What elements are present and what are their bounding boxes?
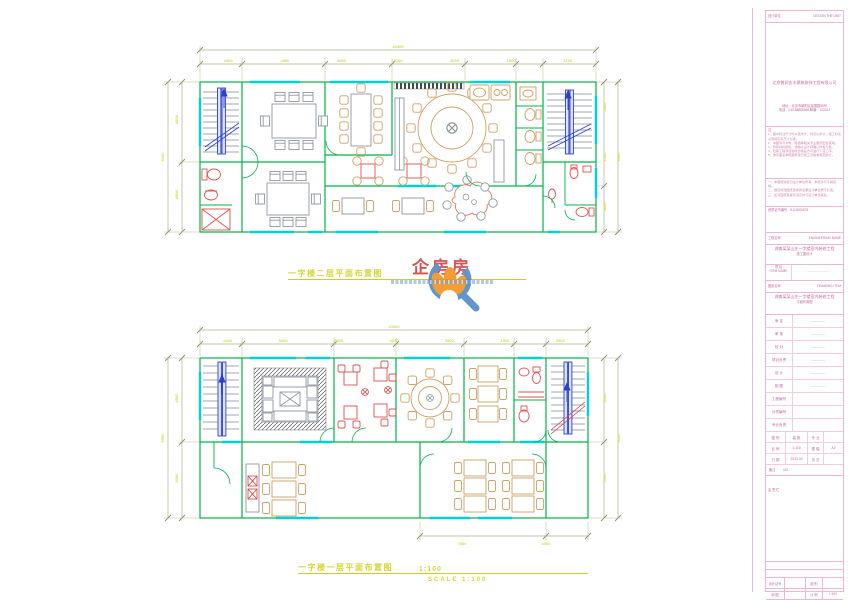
watermark: 企房房: [382, 252, 502, 352]
eng-header-label: 工程名称: [768, 236, 781, 240]
list-item: 4200: [394, 57, 403, 65]
pair-value: 装 施: [785, 432, 807, 442]
pair-value: [823, 432, 843, 442]
pair-label: 日 期: [766, 454, 785, 464]
table-column-upper: [470, 366, 507, 422]
four-seat-tables: [333, 198, 434, 214]
floor-plan-top: [164, 46, 622, 235]
sign-label: 制 图: [766, 380, 792, 392]
grid-value: [784, 589, 805, 599]
pair-row: 图 别装 施专 业: [766, 432, 843, 443]
bathroom-left: [202, 169, 230, 230]
signoff-label: 会 签 栏: [768, 488, 779, 492]
pair-label: 图 别: [766, 432, 785, 442]
company-phone: 电话：010-88886666 邮编：100022: [768, 108, 841, 112]
list-item: 1500: [507, 57, 516, 65]
list-item: 7500: [458, 540, 467, 548]
list-item: 三、如对图纸有疑问请及时与设计单位联系。: [768, 193, 841, 197]
list-item: 3100: [563, 57, 572, 65]
pair-label: 比 例: [766, 443, 785, 453]
dim-bottom-left-segments: 50004500: [173, 358, 181, 518]
plan-title-top-text: 一字楼二层平面布置图: [288, 268, 383, 279]
notes-list: 1、图中标注尺寸均以毫米计，标高以米计，施工时请以现场实际尺寸为准。2、本图须与…: [768, 132, 841, 157]
design-unit-en: DESIGN THE UNIT: [813, 14, 841, 18]
living-room: [254, 368, 326, 430]
title-block: 设计单位 DESIGN THE UNIT 北京普润金丰建筑装饰工程有限公司 地址…: [765, 10, 844, 592]
eng-line1: 湖南某某山庄一字楼室内装修工程: [768, 246, 841, 252]
sign-row: 设 计————: [766, 367, 843, 380]
remark-label: 备注: [769, 468, 775, 472]
list-item: 2500: [556, 337, 565, 345]
eng-line2: 施工图设计: [768, 252, 841, 256]
pair-value: 1:100: [785, 443, 807, 453]
table-group-lower-right-1: [455, 460, 496, 512]
sign-label: 审 定: [766, 315, 792, 327]
design-unit-label: 设计单位: [768, 14, 781, 18]
pair-row: 比 例1:100图 幅A2: [766, 443, 843, 454]
top-plan-stair-left: [203, 88, 239, 154]
cad-sheet: 24400 2400480039004200300015003100 9300 …: [0, 0, 848, 600]
dim-bottom-edge: 75002500: [420, 540, 588, 548]
list-item: 4500: [601, 394, 609, 403]
bottom-plan-bathroom: [518, 367, 544, 422]
sign-row: 审 核————: [766, 328, 843, 341]
grid-label: 制 图: [766, 589, 784, 599]
table-group-lower-right-2: [503, 460, 544, 512]
list-item: 3900: [337, 57, 346, 65]
grid-value: [822, 578, 843, 588]
pair-value: 2013.04: [785, 454, 807, 464]
long-table-room: [340, 84, 382, 156]
sheet-inner-border: [752, 8, 753, 592]
list-item: 4500: [173, 115, 181, 124]
meta-label: 工程编号: [766, 393, 792, 405]
cert-section: 资质证书编号：B113005678: [766, 207, 843, 233]
sign-label: 设 计: [766, 367, 792, 379]
dim-bottom-left-overall: 9500: [159, 358, 167, 518]
bottom-plan-stair-right: [551, 362, 585, 434]
notes-section: 注： 1、图中标注尺寸均以毫米计，标高以米计，施工时请以现场实际尺寸为准。2、本…: [766, 127, 843, 179]
toilet-room-right: [549, 165, 595, 217]
meta-value: [792, 419, 843, 431]
top-plan-dimension-lines: [164, 46, 622, 235]
meta-row: 工程编号: [766, 393, 843, 406]
dim-top-left-segments: 48004500: [173, 82, 181, 232]
item-row: 项 目 ITEM NAME －－－－－－－: [766, 265, 843, 281]
signoff-empty-row: [766, 570, 843, 578]
dim-value: 9000: [615, 153, 623, 162]
item-label-en: ITEM NAME: [766, 269, 791, 273]
item-value: －－－－－－－: [792, 265, 843, 280]
meta-row: 专业负责: [766, 419, 843, 432]
sign-row: 审 定————: [766, 315, 843, 328]
grid-label: 比 例: [805, 589, 822, 599]
draw-line1: 湖南某某山庄一字楼室内装修工程: [768, 294, 841, 300]
plan-title-bottom: 一字楼一层平面布置图 1:100: [298, 559, 588, 574]
draw-header-label: 图纸名称: [768, 284, 781, 288]
list-item: 3000: [450, 57, 459, 65]
list-item: 1400: [601, 153, 609, 162]
grid-value: 1:100: [822, 589, 843, 599]
dim-bottom-right-overall: 9500: [615, 358, 623, 518]
list-item: 4800: [601, 203, 609, 212]
dim-top-left-overall: 9300: [159, 82, 167, 232]
bottom-grid-row: 设计证号图 别: [766, 578, 843, 589]
service-cabinet: [246, 464, 259, 512]
sign-value: ————: [792, 380, 843, 392]
sign-value: ————: [792, 367, 843, 379]
remark-row: 备注 NO.: [766, 465, 843, 476]
meta-value: [792, 406, 843, 418]
list-item: 4500: [173, 394, 181, 403]
list-item: 二、擅自修改图纸造成的后果设计单位概不负责。: [768, 188, 841, 192]
draw-line2: 平面布置图: [768, 300, 841, 304]
plan-scale-note: SCALE 1:100: [428, 577, 487, 583]
dim-bottom-right-segments: 50004500: [601, 358, 609, 518]
grid-label: 图 别: [805, 578, 822, 588]
plan-scale: 1:100: [419, 566, 442, 573]
table-column-lower-mid: [263, 462, 306, 516]
meta-row: 分项编号: [766, 406, 843, 419]
title-block-header: 设计单位 DESIGN THE UNIT: [766, 11, 843, 23]
pair-value: [823, 454, 843, 464]
sign-row: 制 图————: [766, 380, 843, 393]
round-table-room: [401, 369, 459, 427]
list-item: 1、图中标注尺寸均以毫米计，标高以米计，施工时请以现场实际尺寸为准。: [768, 132, 841, 140]
company-section: 北京普润金丰建筑装饰工程有限公司 地址：北京市朝阳区建国路88号 电话：010-…: [766, 23, 843, 127]
sign-row: 校 对————: [766, 341, 843, 354]
pair-label: 页 次: [807, 454, 823, 464]
grid-value: [784, 578, 805, 588]
dim-top-segments: 2400480039004200300015003100: [200, 57, 596, 65]
sign-label: 审 核: [766, 328, 792, 340]
engineering-name: 湖南某某山庄一字楼室内装修工程 施工图设计: [766, 245, 843, 265]
floor-plan-bottom: [164, 326, 622, 540]
top-plan-stair-right: [547, 90, 592, 154]
list-item: 5000: [601, 474, 609, 483]
signoff-box: 会 签 栏: [766, 476, 843, 562]
meta-value: [792, 393, 843, 405]
statements-section: 一、本图纸版权归设计单位所有，未经许可不得复制。二、擅自修改图纸造成的后果设计单…: [766, 179, 843, 207]
dim-top-right-overall: 9000: [615, 82, 623, 232]
watermark-tagline-strip: [391, 280, 493, 284]
draw-header-en: DRAWING ITEM: [817, 284, 841, 288]
organic-table: [443, 176, 497, 221]
dining-room-a2: [256, 172, 321, 227]
list-item: 2400: [224, 57, 233, 65]
dim-top-overall: 24400: [200, 43, 596, 51]
sign-value: ————: [792, 354, 843, 366]
dim-value: 9500: [159, 434, 167, 443]
list-item: 3600: [334, 337, 343, 345]
dim-value: 9500: [615, 434, 623, 443]
company-name: 北京普润金丰建筑装饰工程有限公司: [768, 80, 841, 86]
dim-value: 9300: [159, 153, 167, 162]
meta-label: 专业负责: [766, 419, 792, 431]
list-item: 2800: [601, 103, 609, 112]
pair-row: 日 期2013.04页 次: [766, 454, 843, 465]
engineering-header: 工程名称 ENGINEERING NAME: [766, 233, 843, 245]
sign-value: ————: [792, 315, 843, 327]
sign-value: ————: [792, 341, 843, 353]
wall-hatch-strip: [394, 83, 464, 89]
meta-label: 分项编号: [766, 406, 792, 418]
sign-value: ————: [792, 328, 843, 340]
eng-header-en: ENGINEERING NAME: [809, 236, 841, 240]
pair-label: 图 幅: [807, 443, 823, 453]
card-room: [338, 361, 396, 428]
list-item: 2500: [542, 540, 551, 548]
grid-label: 设计证号: [766, 578, 784, 588]
sign-label: 校 对: [766, 341, 792, 353]
sign-label: 项目负责: [766, 354, 792, 366]
pair-label: 专 业: [807, 432, 823, 442]
list-item: 4800: [280, 57, 289, 65]
bottom-plan-stair-left: [203, 362, 239, 436]
list-item: 5300: [279, 337, 288, 345]
list-item: 5000: [173, 474, 181, 483]
list-item: 2400: [223, 337, 232, 345]
tea-tables: [353, 157, 429, 185]
bottom-grid-row: 制 图比 例1:100: [766, 589, 843, 600]
plan-title-bottom-text: 一字楼一层平面布置图: [298, 562, 393, 573]
signoff-empty-row: [766, 562, 843, 570]
drawing-header: 图纸名称 DRAWING ITEM: [766, 281, 843, 293]
list-item: 4800: [173, 190, 181, 199]
dining-room-a: [261, 93, 328, 150]
cert-line: 资质证书编号：B113005678: [768, 208, 841, 212]
remark-no: NO.: [783, 468, 789, 472]
sign-row: 项目负责————: [766, 354, 843, 367]
list-item: 5、未尽事宜参照国家现行施工及验收规范执行。: [768, 153, 841, 157]
dim-value: 24400: [392, 43, 403, 51]
dim-top-right-segments: 480014002800: [601, 82, 609, 232]
drawing-name: 湖南某某山庄一字楼室内装修工程 平面布置图: [766, 293, 843, 315]
pair-value: A2: [823, 443, 843, 453]
